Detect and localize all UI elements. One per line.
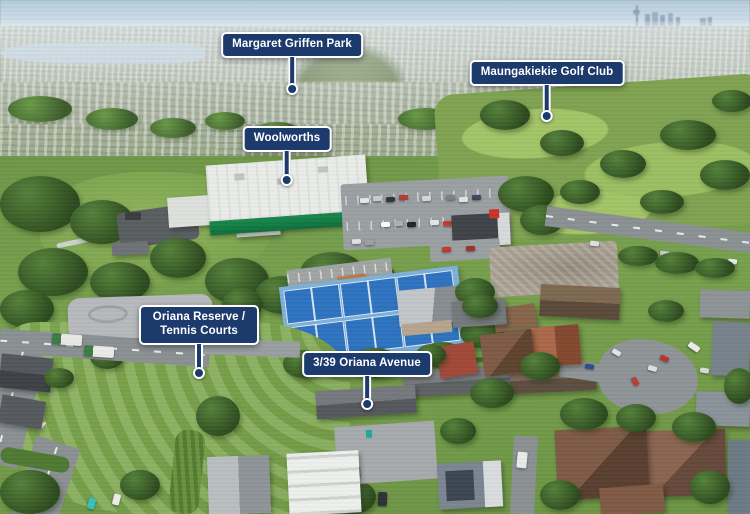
callout-maungakiekie-golf-club: Maungakiekie Golf Club: [470, 60, 625, 122]
solar-panel: [445, 470, 475, 501]
callout-subject-property: 3/39 Oriana Avenue: [302, 351, 432, 410]
car: [352, 239, 361, 244]
callout-dot: [361, 398, 373, 410]
tree: [540, 480, 580, 510]
tree: [8, 96, 72, 122]
car: [466, 246, 475, 251]
tree: [150, 238, 206, 278]
car: [459, 197, 468, 202]
car: [407, 222, 416, 227]
car: [381, 222, 390, 227]
tree: [520, 352, 560, 380]
label-maungakiekie-golf-club: Maungakiekie Golf Club: [470, 60, 625, 86]
tree: [660, 120, 716, 150]
callout-dot: [541, 110, 553, 122]
tree: [120, 470, 160, 500]
house-roof: [207, 455, 271, 514]
tree: [18, 248, 88, 296]
tree: [672, 412, 716, 442]
label-oriana-reserve-tennis-courts: Oriana Reserve / Tennis Courts: [139, 305, 259, 345]
building-with-solar: [437, 460, 503, 509]
callout-stem: [283, 151, 291, 175]
callout-oriana-reserve-tennis-courts: Oriana Reserve / Tennis Courts: [139, 305, 259, 379]
tree: [690, 470, 730, 504]
roof-section: [483, 460, 503, 507]
tennis-court: [340, 277, 400, 318]
car: [399, 195, 408, 200]
callout-stem: [543, 85, 551, 111]
callout-stem: [288, 57, 296, 84]
car: [442, 247, 451, 252]
street: [510, 435, 538, 514]
car: [585, 363, 595, 369]
callout-woolworths: Woolworths: [243, 126, 332, 186]
wheelie-bin: [366, 430, 373, 438]
car: [422, 196, 431, 201]
tree: [640, 190, 684, 214]
car: [394, 221, 403, 226]
bus: [52, 333, 83, 346]
car: [472, 195, 481, 200]
car: [365, 240, 374, 245]
fastfood-red-sign: [489, 209, 499, 219]
house-roof: [599, 484, 665, 514]
tree: [712, 90, 750, 112]
tree: [655, 252, 699, 274]
callout-dot: [193, 367, 205, 379]
car: [386, 197, 395, 202]
tree: [648, 300, 684, 322]
tree: [560, 180, 600, 204]
house-roof: [539, 284, 621, 320]
callout-dot: [286, 83, 298, 95]
label-woolworths: Woolworths: [243, 126, 332, 152]
tree: [44, 368, 74, 388]
tree: [0, 470, 60, 514]
car: [446, 195, 455, 200]
tree: [0, 176, 80, 232]
tree: [86, 108, 138, 130]
tree: [540, 130, 584, 156]
label-margaret-griffen-park: Margaret Griffen Park: [221, 32, 363, 58]
warehouse-roof: [286, 450, 361, 514]
skate-ramp: [88, 304, 129, 323]
car: [373, 196, 382, 201]
bus: [84, 345, 115, 358]
car: [430, 220, 439, 225]
tree: [700, 160, 750, 190]
tree: [695, 258, 735, 278]
small-building-roof: [112, 241, 149, 256]
house-roof: [728, 440, 750, 514]
van: [516, 452, 528, 469]
tree: [440, 418, 476, 444]
tennis-court: [283, 284, 343, 325]
callout-stem: [195, 344, 203, 368]
tree: [600, 150, 646, 178]
car: [590, 240, 600, 246]
tree: [205, 112, 245, 130]
label-subject-property: 3/39 Oriana Avenue: [302, 351, 432, 377]
tree: [618, 246, 658, 266]
house-roof: [700, 289, 750, 319]
aerial-photo: Margaret Griffen Park Maungakiekie Golf …: [0, 0, 750, 514]
tree: [616, 404, 656, 432]
car: [378, 492, 387, 506]
tree: [150, 118, 196, 138]
truck: [125, 212, 141, 220]
tree: [462, 294, 498, 318]
callout-margaret-griffen-park: Margaret Griffen Park: [221, 32, 363, 95]
sky-tower-pod: [633, 9, 640, 15]
car: [360, 198, 369, 203]
tree: [560, 398, 608, 430]
tree: [724, 368, 750, 404]
callout-stem: [363, 376, 371, 399]
tree: [470, 378, 514, 408]
callout-dot: [281, 174, 293, 186]
tree: [196, 396, 240, 436]
